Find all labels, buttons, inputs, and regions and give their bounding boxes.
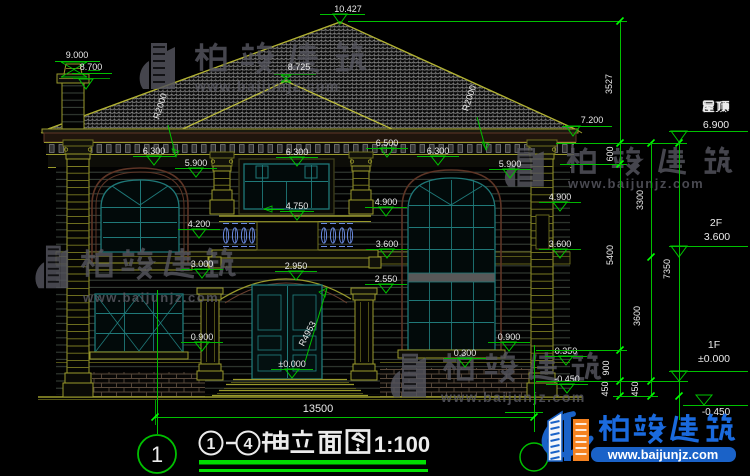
svg-text:1F: 1F (708, 339, 720, 351)
svg-text:3300: 3300 (635, 190, 645, 210)
svg-text:5400: 5400 (605, 245, 615, 265)
svg-text:3.600: 3.600 (704, 231, 730, 243)
svg-text:0.900: 0.900 (191, 332, 214, 342)
svg-text:6.300: 6.300 (143, 146, 166, 156)
svg-text:3527: 3527 (604, 74, 614, 94)
svg-text:4.750: 4.750 (286, 201, 309, 211)
svg-text:2.550: 2.550 (375, 274, 398, 284)
svg-text:±0.000: ±0.000 (278, 359, 305, 369)
svg-text:4: 4 (244, 436, 253, 453)
svg-text:2F: 2F (710, 217, 722, 229)
svg-text:www.baijunjz.com: www.baijunjz.com (194, 78, 340, 94)
svg-text:4.900: 4.900 (549, 192, 572, 202)
svg-text:13500: 13500 (303, 403, 334, 415)
svg-text:450: 450 (630, 381, 640, 396)
svg-text:0.300: 0.300 (454, 348, 477, 358)
svg-text:0.900: 0.900 (498, 332, 521, 342)
svg-text:2.950: 2.950 (285, 261, 308, 271)
svg-text:5.900: 5.900 (499, 159, 522, 169)
svg-text:600: 600 (605, 146, 615, 161)
svg-text:3.000: 3.000 (191, 259, 214, 269)
svg-text:6.500: 6.500 (376, 138, 399, 148)
svg-text:3600: 3600 (632, 306, 642, 326)
svg-text:10.427: 10.427 (334, 4, 362, 14)
svg-text:1: 1 (151, 442, 163, 467)
svg-text:900: 900 (601, 360, 611, 375)
svg-text:6.900: 6.900 (703, 119, 729, 131)
svg-text:5.900: 5.900 (185, 158, 208, 168)
svg-text:www.baijunjz.com: www.baijunjz.com (567, 176, 704, 191)
svg-text:www.baijunjz.com: www.baijunjz.com (440, 389, 586, 405)
svg-text:6.300: 6.300 (427, 146, 450, 156)
svg-text:0.350: 0.350 (555, 346, 578, 356)
svg-text:4.200: 4.200 (188, 219, 211, 229)
svg-text:3.600: 3.600 (376, 239, 399, 249)
svg-text:450: 450 (600, 381, 610, 396)
svg-text:8.700: 8.700 (80, 62, 103, 72)
svg-text:4.900: 4.900 (375, 197, 398, 207)
svg-text:www.baijunjz.com: www.baijunjz.com (607, 447, 718, 462)
svg-text:3.600: 3.600 (549, 239, 572, 249)
svg-text:±0.000: ±0.000 (698, 353, 730, 365)
svg-text:9.000: 9.000 (66, 50, 89, 60)
svg-text:-0.450: -0.450 (554, 374, 580, 384)
svg-text:6.300: 6.300 (286, 147, 309, 157)
svg-text:1:100: 1:100 (374, 432, 430, 457)
svg-text:1: 1 (207, 436, 216, 453)
svg-text:7350: 7350 (662, 259, 672, 279)
svg-text:-0.450: -0.450 (702, 407, 731, 418)
svg-text:7.200: 7.200 (581, 115, 604, 125)
svg-text:www.baijunjz.com: www.baijunjz.com (82, 290, 219, 305)
svg-text:8.725: 8.725 (288, 62, 311, 72)
